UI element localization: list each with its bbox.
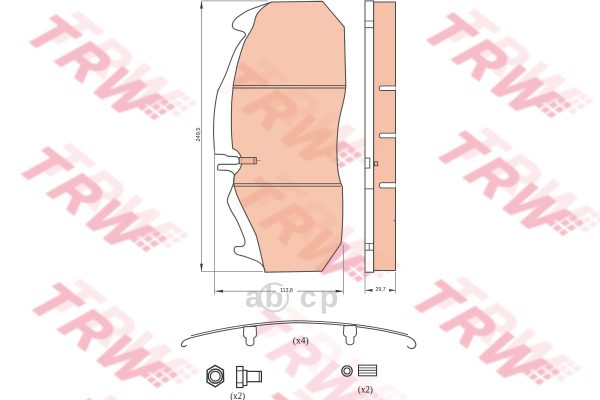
svg-text:c: c bbox=[300, 279, 317, 314]
svg-text:(x2): (x2) bbox=[358, 384, 373, 394]
svg-text:(x4): (x4) bbox=[293, 336, 309, 347]
svg-text:113,8: 113,8 bbox=[280, 288, 293, 294]
svg-text:29,7: 29,7 bbox=[376, 287, 386, 293]
svg-text:249,5: 249,5 bbox=[196, 128, 202, 142]
svg-text:p: p bbox=[320, 279, 339, 314]
svg-text:(x2): (x2) bbox=[230, 391, 245, 400]
